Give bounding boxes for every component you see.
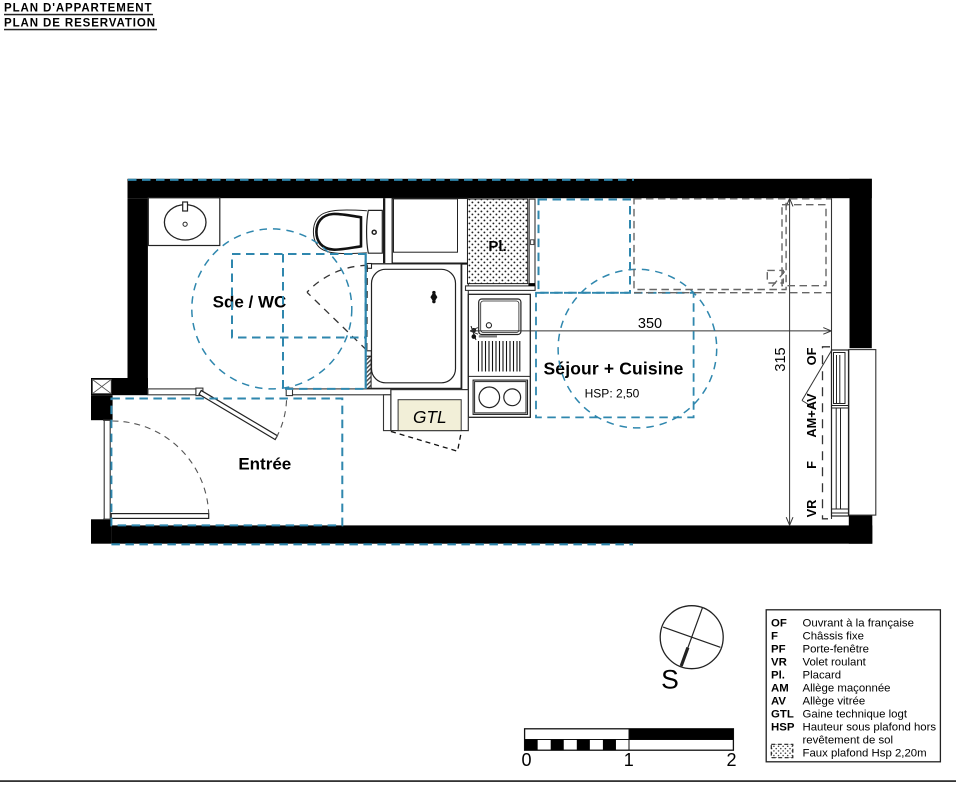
- svg-text:Hauteur sous plafond hors: Hauteur sous plafond hors: [803, 721, 937, 733]
- svg-text:Sde / WC: Sde / WC: [213, 293, 287, 312]
- svg-text:315: 315: [773, 347, 789, 371]
- svg-text:AM: AM: [771, 682, 789, 694]
- svg-text:Pl.: Pl.: [488, 238, 506, 255]
- svg-text:Faux plafond Hsp 2,20m: Faux plafond Hsp 2,20m: [803, 747, 927, 759]
- svg-text:2: 2: [726, 750, 736, 770]
- svg-text:Châssis fixe: Châssis fixe: [803, 630, 864, 642]
- svg-text:AM+AV: AM+AV: [804, 393, 819, 438]
- svg-text:VR: VR: [804, 500, 819, 518]
- svg-text:GTL: GTL: [413, 407, 447, 427]
- svg-text:HSP: HSP: [771, 721, 795, 733]
- svg-text:Gaine technique logt: Gaine technique logt: [803, 708, 908, 720]
- svg-text:Allège vitrée: Allège vitrée: [803, 695, 866, 707]
- svg-text:PF: PF: [771, 643, 786, 655]
- svg-text:GTL: GTL: [771, 708, 794, 720]
- svg-text:Ouvrant à la française: Ouvrant à la française: [803, 617, 914, 629]
- svg-text:0: 0: [521, 750, 531, 770]
- svg-text:Entrée: Entrée: [238, 455, 291, 474]
- svg-text:revêtement de sol: revêtement de sol: [803, 734, 894, 746]
- svg-text:OF: OF: [804, 347, 819, 365]
- svg-text:Allège maçonnée: Allège maçonnée: [803, 682, 891, 694]
- svg-text:PLAN DE RESERVATION: PLAN DE RESERVATION: [4, 18, 156, 30]
- svg-text:350: 350: [638, 316, 662, 332]
- svg-text:AV: AV: [771, 695, 786, 707]
- svg-text:Pl.: Pl.: [771, 669, 785, 681]
- svg-text:PLAN D'APPARTEMENT: PLAN D'APPARTEMENT: [4, 3, 152, 15]
- svg-text:Volet roulant: Volet roulant: [803, 656, 867, 668]
- svg-text:VR: VR: [771, 656, 787, 668]
- svg-text:S: S: [661, 665, 679, 695]
- svg-text:Porte-fenêtre: Porte-fenêtre: [803, 643, 869, 655]
- svg-text:F: F: [771, 630, 778, 642]
- svg-text:Placard: Placard: [803, 669, 842, 681]
- svg-text:OF: OF: [771, 617, 787, 629]
- svg-text:1: 1: [624, 750, 634, 770]
- svg-text:F: F: [804, 461, 819, 469]
- svg-text:Séjour + Cuisine: Séjour + Cuisine: [543, 359, 683, 379]
- svg-text:HSP: 2,50: HSP: 2,50: [585, 387, 640, 401]
